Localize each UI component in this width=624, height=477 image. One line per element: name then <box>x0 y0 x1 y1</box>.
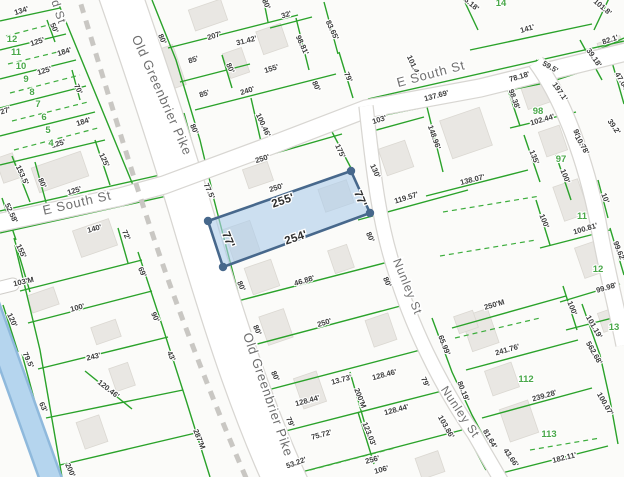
map-viewport[interactable]: 134'50'125'184'125'70'27'184'125'125'125… <box>0 0 624 477</box>
parcel-number-label: 4 <box>48 138 54 149</box>
parcel-number-label: 12 <box>7 34 18 45</box>
parcel-vertex-handle[interactable] <box>219 263 227 271</box>
parcel-number-label: 11 <box>11 47 22 58</box>
parcel-number-label: 8 <box>29 87 34 98</box>
parcel-number-label: 9 <box>23 74 28 85</box>
parcel-number-label: 14 <box>496 0 507 9</box>
parcel-number-label: 98 <box>533 106 544 117</box>
parcel-number-label: 13 <box>609 322 620 333</box>
parcel-number-label: 6 <box>41 112 46 123</box>
parcel-number-label: 97 <box>556 154 567 165</box>
parcel-number-label: 7 <box>35 99 40 110</box>
parcel-number-label: 112 <box>518 374 533 385</box>
parcel-vertex-handle[interactable] <box>347 167 355 175</box>
parcel-number-label: 11 <box>577 211 588 222</box>
parcel-number-label: 10 <box>16 61 27 72</box>
parcel-number-label: 113 <box>541 429 556 440</box>
parcel-vertex-handle[interactable] <box>366 209 374 217</box>
map-canvas[interactable]: 134'50'125'184'125'70'27'184'125'125'125… <box>0 0 624 477</box>
parcel-number-label: 5 <box>45 125 51 136</box>
parcel-vertex-handle[interactable] <box>204 217 212 225</box>
parcel-number-label: 12 <box>593 264 604 275</box>
